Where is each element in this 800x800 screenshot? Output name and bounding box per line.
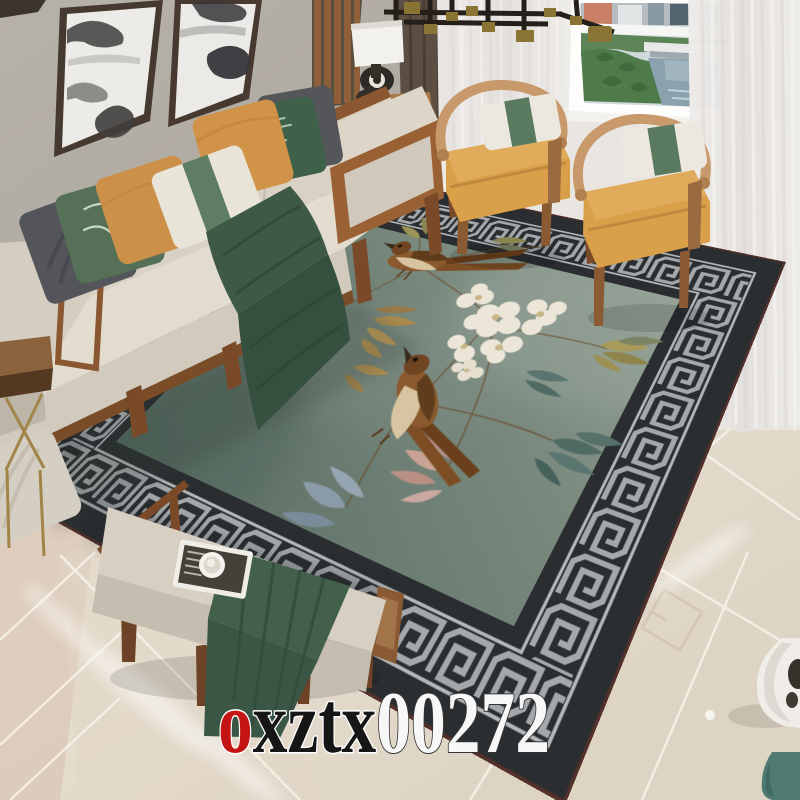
svg-text:oxztx00272: oxztx00272 — [218, 675, 550, 772]
